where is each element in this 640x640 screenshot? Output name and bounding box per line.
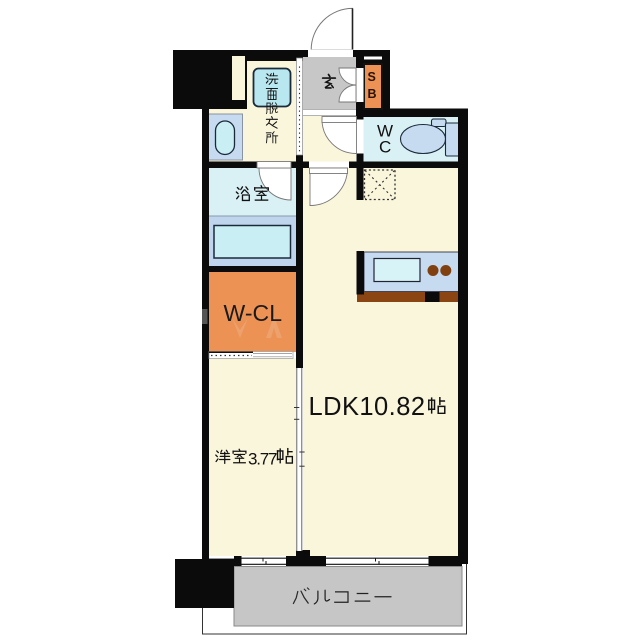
svg-text:C: C — [379, 138, 391, 157]
svg-text:S: S — [368, 70, 376, 84]
svg-text:3.77: 3.77 — [248, 450, 278, 469]
svg-text:LDK10.82: LDK10.82 — [309, 393, 426, 421]
svg-text:W-CL: W-CL — [224, 300, 283, 326]
svg-text:B: B — [368, 87, 377, 101]
